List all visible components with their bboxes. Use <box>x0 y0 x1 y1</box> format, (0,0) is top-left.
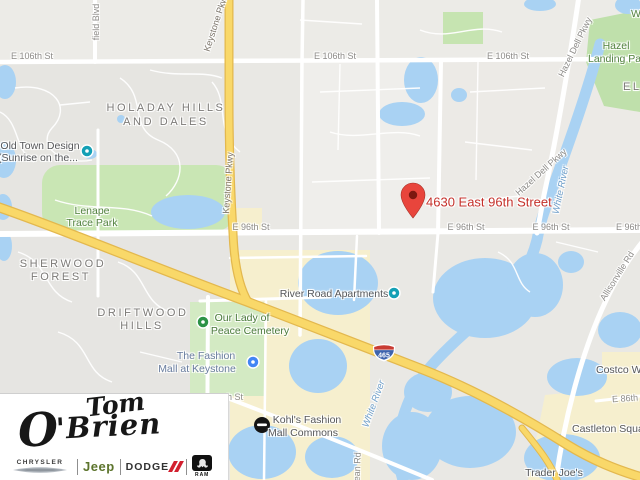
brand-divider <box>120 459 121 475</box>
poi-label-kohls-line2[interactable]: Mall Commons <box>268 427 338 439</box>
street-label-e106th-2: E 106th St <box>314 51 356 61</box>
poi-pin-fashion-mall[interactable] <box>247 356 259 368</box>
neighborhood-driftwood-line2: HILLS <box>120 320 164 332</box>
street-label-e106th-1: E 106th St <box>11 51 53 61</box>
teal-poi-icon <box>392 291 396 295</box>
poi-label-fashion-mall-line2[interactable]: Mall at Keystone <box>158 363 236 375</box>
brand-divider <box>77 459 78 475</box>
ram-head-icon <box>192 455 212 471</box>
neighborhood-sherwood-line1: SHERWOOD <box>20 258 107 270</box>
park-label-lenape-line2: Trace Park <box>67 217 118 229</box>
street-label-e86th: E 86th St <box>612 392 640 405</box>
park-label-hazel-landing-line2: Landing Park <box>588 53 640 65</box>
chrysler-wordmark: CHRYSLER <box>17 459 64 466</box>
street-label-dean-rd: Dean Rd <box>351 452 362 480</box>
teal-poi-icon <box>85 149 89 153</box>
poi-label-old-town-line1[interactable]: Old Town Design <box>0 140 79 152</box>
neighborhood-partial-east: EL <box>623 81 640 93</box>
brand-divider <box>186 459 187 475</box>
map[interactable]: 465 E 106th St E 106th St E <box>0 0 640 480</box>
dodge-logo: DODGE <box>126 461 182 473</box>
dodge-wordmark: DODGE <box>126 461 170 473</box>
street-label-field-blvd: field Blvd <box>91 4 101 41</box>
neighborhood-sherwood-line2: FOREST <box>31 271 91 283</box>
destination-marker-address: 4630 East 96th Street <box>426 195 552 210</box>
dealer-logo-panel: Tom O'Brien CHRYSLER Jeep DODGE <box>0 393 229 480</box>
poi-label-river-road-apartments[interactable]: River Road Apartments <box>280 288 389 300</box>
dealer-name-big-o: O <box>17 402 58 458</box>
street-label-e96th-2: E 96th St <box>447 222 484 232</box>
park-label-lenape-line1: Lenape <box>74 205 109 217</box>
brand-logo-row: CHRYSLER Jeep DODGE <box>8 455 224 478</box>
dealer-name-rest: 'Brien <box>55 406 162 445</box>
poi-label-trader-joes[interactable]: Trader Joe's <box>525 467 583 479</box>
poi-pin-old-town[interactable] <box>81 145 93 157</box>
park-label-hazel-landing-line1: Hazel <box>603 40 630 52</box>
kohls-logo-icon <box>257 424 267 427</box>
street-label-e106th-3: E 106th St <box>487 51 529 61</box>
poi-label-costco[interactable]: Costco Wholesale <box>596 364 640 376</box>
neighborhood-driftwood-line1: DRIFTWOOD <box>97 307 188 319</box>
neighborhood-holaday-line1: HOLADAY HILLS <box>107 102 226 114</box>
street-label-e96th-3: E 96th St <box>532 222 569 232</box>
poi-label-old-town-line2[interactable]: (Sunrise on the... <box>0 152 78 164</box>
poi-label-kohls-line1[interactable]: Kohl's Fashion <box>273 414 342 426</box>
ram-logo: RAM <box>192 455 212 478</box>
jeep-wordmark: Jeep <box>83 459 115 474</box>
leaf-icon <box>201 320 205 324</box>
interstate-465-number: 465 <box>378 352 390 359</box>
street-label-e96th-1: E 96th St <box>232 222 269 232</box>
poi-pin-cemetery[interactable] <box>197 316 209 328</box>
park-label-partial-w: W <box>631 8 640 20</box>
neighborhood-holaday-line2: AND DALES <box>123 116 209 128</box>
poi-label-fashion-mall-line1[interactable]: The Fashion <box>177 350 235 362</box>
poi-pin-river-road-apartments[interactable] <box>388 287 400 299</box>
poi-label-castleton-square[interactable]: Castleton Square <box>572 423 640 435</box>
street-label-e96th-4: E 96th St <box>616 222 640 232</box>
poi-label-cemetery-line2[interactable]: Peace Cemetery <box>211 325 289 337</box>
ram-wordmark: RAM <box>195 472 209 478</box>
shopping-bag-icon <box>251 360 255 364</box>
poi-label-cemetery-line1[interactable]: Our Lady of <box>215 312 270 324</box>
dealer-name-last: O'Brien <box>17 396 163 457</box>
chrysler-wings-icon <box>11 466 69 475</box>
chrysler-logo: CHRYSLER <box>8 459 72 475</box>
street-label-partial: h St <box>227 392 243 402</box>
